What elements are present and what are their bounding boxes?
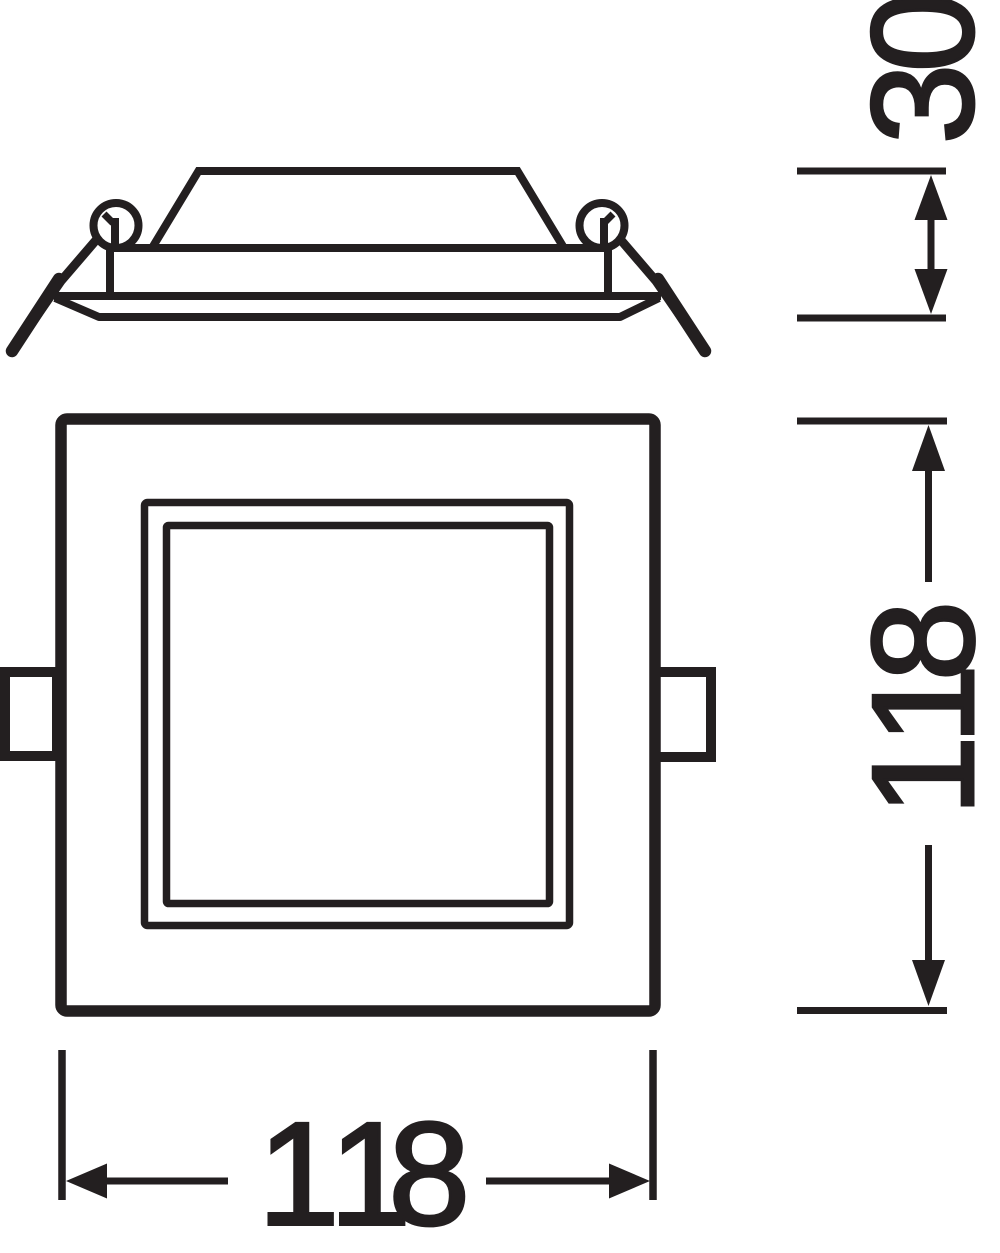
- svg-text:30: 30: [842, 0, 1000, 144]
- svg-text:118: 118: [842, 601, 1000, 816]
- svg-text:118: 118: [258, 1093, 470, 1253]
